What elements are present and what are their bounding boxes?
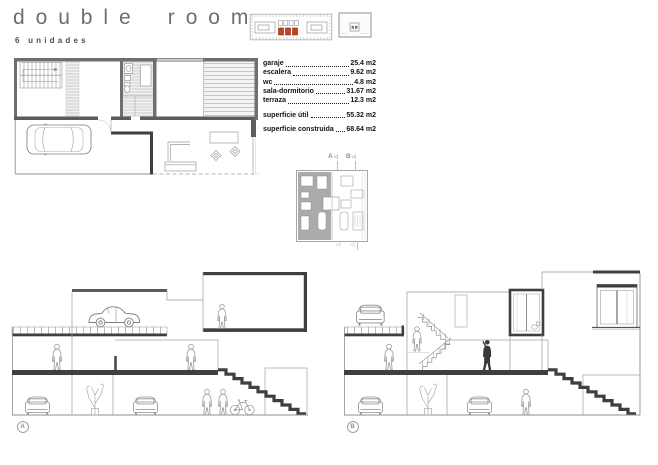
page-subtitle: 6 unidades — [15, 36, 89, 45]
car-front-view-icon — [134, 397, 158, 415]
highlighted-units — [279, 28, 298, 35]
person-figure — [219, 389, 228, 415]
living-room-furniture — [165, 132, 240, 171]
section-cut-arrow-icon: ◁ — [336, 242, 340, 248]
tree-icon — [420, 384, 437, 415]
person-figure — [385, 344, 394, 370]
armchair — [211, 151, 221, 161]
deck-hatch — [344, 327, 404, 334]
section-cut-arrow-icon: ◁ — [334, 154, 338, 160]
plan-terrace-deck — [204, 62, 255, 117]
section-cut-line — [355, 161, 356, 170]
drawing-sheet: double room 6 unidades — [0, 0, 658, 465]
door-swing-arc — [99, 120, 112, 133]
section-a-drawing — [10, 263, 330, 435]
person-figure — [218, 304, 226, 328]
tree-icon — [87, 384, 104, 415]
person-figure — [413, 327, 421, 351]
floor-slab — [344, 370, 548, 375]
car-side-view-icon — [89, 307, 140, 327]
site-plan-strip — [249, 13, 333, 41]
key-plan — [296, 170, 368, 242]
area-row: terraza12.3 m2 — [263, 97, 376, 105]
person-figure — [522, 389, 531, 415]
area-total-construida: superficie construida68.64 m2 — [263, 126, 376, 134]
plan-ramp-hatch — [66, 62, 79, 117]
car-front-view-icon — [357, 305, 385, 325]
bathroom-window — [510, 290, 543, 335]
armchair — [230, 147, 240, 157]
upper-room — [203, 272, 307, 332]
desk — [168, 142, 190, 161]
car-front-view-icon — [468, 397, 492, 415]
tv-panel — [114, 356, 117, 370]
area-row: wc4.8 m2 — [263, 79, 376, 87]
person-silhouette — [482, 340, 491, 370]
plan-left-wall — [14, 58, 17, 120]
area-total-util: superficie útil55.32 m2 — [263, 112, 376, 120]
section-cut-line — [337, 161, 338, 170]
plan-top-wall — [14, 58, 258, 62]
section-cut-arrow-icon: ◁ — [352, 154, 356, 160]
area-table: garaje25.4 m2 escalera9.62 m2 wc4.8 m2 s… — [263, 60, 376, 135]
section-cut-arrow-icon: ◁ — [350, 242, 354, 248]
floor-slab — [12, 370, 218, 375]
person-figure — [203, 389, 212, 415]
section-b-badge: B — [347, 421, 359, 433]
sofa — [165, 162, 196, 171]
section-b-drawing — [344, 263, 656, 435]
person-figure — [53, 344, 62, 370]
area-row: sala-dormitorio31.67 m2 — [263, 88, 376, 96]
bicycle-icon — [230, 400, 254, 415]
area-row: escalera9.62 m2 — [263, 69, 376, 77]
section-cut-marker-b: B ◁ — [346, 153, 356, 160]
coffee-table — [210, 132, 238, 143]
plan-staircase — [20, 63, 62, 89]
exterior-stairs — [548, 370, 636, 414]
section-cut-line — [357, 241, 358, 250]
section-cut-marker-a: A ◁ — [328, 153, 338, 160]
car-top-view-icon — [27, 124, 91, 155]
person-figure — [187, 344, 196, 370]
car-front-view-icon — [26, 397, 50, 415]
area-row: garaje25.4 m2 — [263, 60, 376, 68]
deck-hatch — [12, 327, 167, 334]
section-a-badge: A — [17, 421, 29, 433]
location-thumbnail — [338, 12, 372, 38]
car-front-view-icon — [359, 397, 383, 415]
floor-plan — [14, 58, 258, 178]
interior-staircase — [418, 313, 451, 371]
page-title: double room — [13, 6, 259, 30]
